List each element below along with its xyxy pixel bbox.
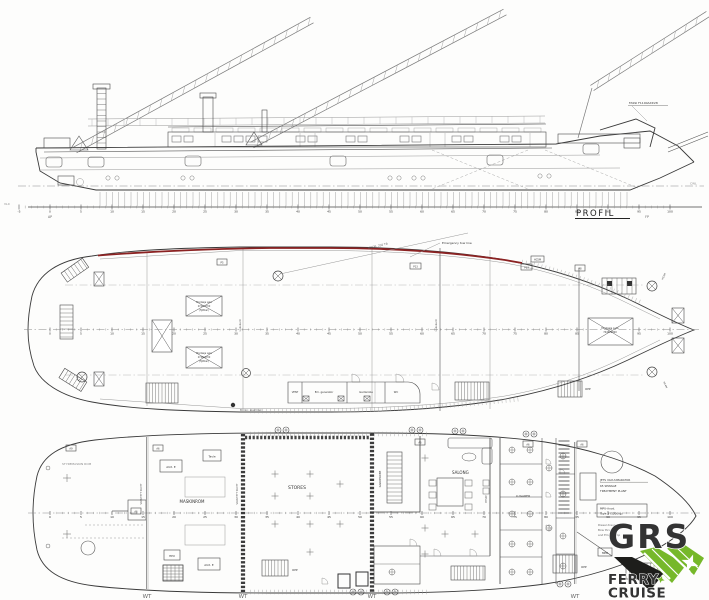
profile-deckhouse [44, 84, 640, 148]
bow-hatch-circle [601, 451, 623, 473]
lower-deck-plan: 0510152025303540455055606570758085909510… [0, 424, 709, 600]
svg-text:5: 5 [80, 332, 82, 336]
deck-code: A9 [69, 448, 73, 451]
hatch-label: 2740x1700 [198, 356, 211, 359]
deck-code: HC5M [534, 259, 541, 262]
svg-text:30: 30 [234, 515, 238, 519]
winch-note: Bunkr. elektrisk [240, 408, 262, 412]
sewage-note: TREATMENT PLANT [599, 489, 627, 493]
svg-text:40: 40 [296, 515, 300, 519]
svg-text:30: 30 [234, 332, 238, 336]
svg-text:55: 55 [389, 515, 393, 519]
svg-text:20: 20 [172, 515, 176, 519]
aux-engine-box: AUX. E [166, 465, 176, 469]
cwl-label: CWL [690, 182, 697, 186]
svg-text:75: 75 [513, 515, 517, 519]
svg-text:95: 95 [637, 210, 641, 214]
bow-fairlead-code: HC4M [661, 273, 667, 281]
grs-ferry-cruise-logo: GRS FERRY CRUISE [604, 517, 709, 600]
stair-label: OPP [581, 565, 587, 569]
svg-text:0: 0 [49, 332, 51, 336]
bulkhead-label: VANNTETT SKOTT [140, 483, 143, 505]
svg-text:50: 50 [358, 332, 362, 336]
svg-text:85: 85 [575, 332, 579, 336]
svg-text:100: 100 [667, 210, 673, 214]
anode-box: Type 3 (1200kg) [599, 512, 623, 516]
coaming-label: Lukekarm [434, 318, 438, 331]
switchboard-box: Tavle [207, 455, 215, 459]
svg-text:65: 65 [451, 332, 455, 336]
lower-deck-generated-details: 0510152025303540455055606570758085909510… [46, 427, 673, 595]
svg-text:5: 5 [80, 210, 82, 214]
svg-text:100: 100 [667, 332, 673, 336]
svg-text:45: 45 [327, 332, 331, 336]
svg-text:60: 60 [420, 332, 424, 336]
svg-text:80: 80 [544, 515, 548, 519]
svg-text:55: 55 [389, 210, 393, 214]
svg-text:15: 15 [141, 210, 145, 214]
sewage-note: JETS VACUUMARATOR [599, 478, 630, 482]
room-wardrobe: Garderobe [359, 390, 373, 394]
profile-view: -505101520253035404550556065707580859095… [0, 0, 709, 230]
main-deck-plan: 0510152025303540455055606570758085909510… [0, 230, 709, 424]
svg-text:70: 70 [482, 332, 486, 336]
hatch-label: 7440x1820 [603, 331, 617, 334]
wt-label: WT [368, 594, 377, 600]
galley-label: BYSSE [485, 495, 488, 503]
svg-text:50: 50 [358, 515, 362, 519]
wt-label: WT [143, 594, 152, 600]
aux-engine-box: AUX. E [204, 563, 214, 567]
svg-text:40: 40 [296, 332, 300, 336]
room-generator: Em. generator [315, 390, 335, 394]
room-wc: WC [394, 390, 399, 394]
hpu-box: HPU [169, 554, 175, 558]
svg-text:15: 15 [141, 515, 145, 519]
lower-deck-rooms: STYREMASKIN ROM MASKINROM AUX. E Tavle H… [62, 450, 671, 575]
deck-code: A6 [526, 444, 530, 447]
svg-text:40: 40 [296, 210, 300, 214]
logo-brand-text: GRS [608, 517, 690, 556]
svg-text:20: 20 [172, 210, 176, 214]
coaming-label: Lukekarm [238, 318, 242, 331]
stair-label: OPP [585, 387, 591, 391]
profile-generated-details: -505101520253035404550556065707580859095… [18, 9, 709, 213]
svg-text:35: 35 [265, 515, 269, 519]
deck-code: A6 [134, 511, 138, 514]
svg-text:50: 50 [358, 210, 362, 214]
svg-text:10: 10 [110, 332, 114, 336]
svg-text:5: 5 [80, 515, 82, 519]
svg-text:45: 45 [327, 210, 331, 214]
deck-code: P13 [524, 267, 529, 270]
svg-text:25: 25 [203, 332, 207, 336]
svg-text:60: 60 [420, 515, 424, 519]
crane-label: FASSI F1100AXP.28 [629, 101, 658, 105]
svg-text:85: 85 [575, 515, 579, 519]
baseline-label: VL0 [4, 202, 10, 206]
room-vent: VENT [292, 391, 299, 394]
hatch-label: Montasje Luke [601, 327, 619, 330]
svg-text:25: 25 [203, 515, 207, 519]
cabins-label: LUGARER [516, 494, 530, 498]
svg-text:65: 65 [451, 515, 455, 519]
fp-label: FP [645, 215, 649, 219]
svg-text:45: 45 [327, 515, 331, 519]
hatch-label: (flyttbar) [199, 360, 209, 363]
svg-text:15: 15 [141, 332, 145, 336]
bow-fairlead-code: HC4M [662, 381, 668, 389]
svg-text:75: 75 [513, 332, 517, 336]
hatch-label: Montasje Luke [196, 352, 212, 355]
wardrobe-label: GARDEROBE [378, 470, 382, 487]
svg-text:35: 35 [265, 332, 269, 336]
main-deck-generated-details: 0510152025303540455055606570758085909510… [49, 258, 684, 403]
drawing-sheet: -505101520253035404550556065707580859095… [0, 0, 709, 600]
hatch-label: (flyttbar) [199, 309, 209, 312]
svg-text:0: 0 [49, 210, 51, 214]
deck-code: A6 [580, 444, 584, 447]
deck-code: P8 [579, 268, 582, 271]
ap-label: AP [48, 215, 52, 219]
deck-code: P13 [413, 266, 418, 269]
saloon-label: SALONG [452, 470, 469, 475]
steering-room-label: STYREMASKIN ROM [62, 462, 92, 466]
svg-text:55: 55 [389, 332, 393, 336]
svg-text:80: 80 [544, 332, 548, 336]
stores-label: STORES [288, 485, 306, 491]
deck-code: P5 [221, 262, 224, 265]
svg-text:35: 35 [265, 210, 269, 214]
deck-code: A6 [156, 448, 160, 451]
svg-text:60: 60 [420, 210, 424, 214]
svg-text:95: 95 [637, 332, 641, 336]
winch-symbol [231, 403, 235, 407]
anode-box: MPU-Anod. [600, 507, 615, 511]
stair-label: OPP [292, 568, 298, 572]
svg-text:-5: -5 [18, 210, 21, 214]
svg-text:30: 30 [234, 210, 238, 214]
wt-label: WT [571, 594, 580, 600]
profile-title: PROFIL [576, 209, 615, 219]
bulkhead-label: VANNTETT SKOTT [236, 483, 239, 505]
svg-text:80: 80 [544, 210, 548, 214]
svg-text:65: 65 [451, 210, 455, 214]
svg-text:0: 0 [49, 515, 51, 519]
svg-text:75: 75 [513, 210, 517, 214]
fassi-crane: FASSI F1100AXP.28 [600, 101, 668, 148]
deck-code: A6 [418, 442, 422, 445]
svg-text:70: 70 [482, 515, 486, 519]
logo-tagline-cruise: CRUISE [608, 586, 666, 600]
svg-text:25: 25 [203, 210, 207, 214]
profile-annotations: PROFIL VL0 CWL AP FP [4, 182, 697, 220]
svg-text:70: 70 [482, 210, 486, 214]
sewage-note: 65 SEWAGE [600, 484, 617, 488]
svg-text:10: 10 [110, 515, 114, 519]
wt-label: WT [239, 594, 248, 600]
svg-text:20: 20 [172, 332, 176, 336]
tow-line-label: Emergency tow line [442, 241, 472, 245]
profile-hull [18, 131, 708, 190]
svg-text:10: 10 [110, 210, 114, 214]
hatch-label: 2740x1700 [198, 305, 211, 308]
hatch-label: Montasje Luke [196, 301, 212, 304]
engine-room-label: MASKINROM [180, 499, 205, 504]
